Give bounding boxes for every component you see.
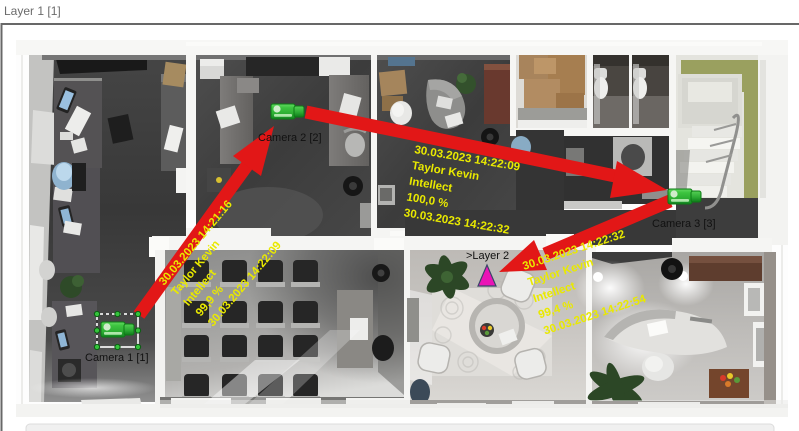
svg-text:>Layer 2: >Layer 2 bbox=[466, 250, 509, 262]
svg-text:Camera 2 [2]: Camera 2 [2] bbox=[258, 132, 322, 144]
svg-text:Camera 3 [3]: Camera 3 [3] bbox=[652, 218, 716, 230]
svg-text:Camera 1 [1]: Camera 1 [1] bbox=[85, 352, 149, 364]
svg-text:Layer 1 [1]: Layer 1 [1] bbox=[4, 4, 61, 18]
